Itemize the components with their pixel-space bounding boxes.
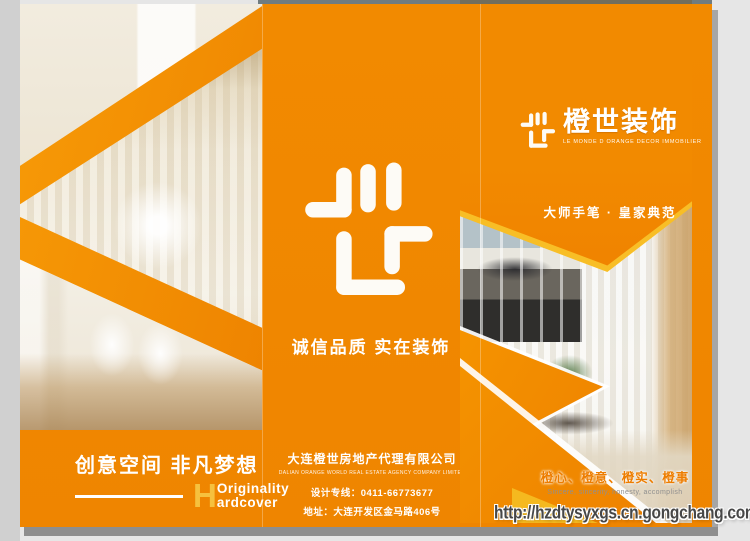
- center-slogan: 诚信品质 实在装饰: [266, 333, 476, 358]
- left-photo-collage: [20, 4, 262, 430]
- company-design-hotline: 设计专线：0411-66773677: [272, 485, 472, 499]
- top-edge-strip: [258, 0, 712, 4]
- right-shadow: [712, 10, 718, 527]
- bottom-shadow: [24, 527, 718, 536]
- brand-logo: 橙世装饰 LE MONDE D ORANGE DECOR IMMOBILIER: [516, 108, 702, 154]
- company-name-english: DALIAN ORANGE WORLD REAL ESTATE AGENCY C…: [272, 470, 472, 476]
- brand-title: 橙世装饰: [563, 108, 702, 136]
- bottom-left-slogan: 创意空间 非凡梦想: [75, 449, 259, 478]
- company-name-chinese: 大连橙世房地产代理有限公司: [272, 450, 472, 467]
- watermark-url: http://hzdtysyxgs.cn.gongchang.com: [494, 503, 750, 524]
- hardcover-initial: H: [193, 482, 216, 510]
- shi-logomark-icon: [288, 148, 436, 318]
- company-address: 地址：大连开发区金马路406号: [272, 504, 472, 518]
- fold-line-right: [480, 4, 481, 527]
- brand-values-block: 橙心、橙意、橙实、橙事 Sincere, sincerity, honesty,…: [520, 467, 710, 496]
- brand-subtitle: LE MONDE D ORANGE DECOR IMMOBILIER: [563, 139, 702, 145]
- left-margin: [0, 0, 20, 541]
- brand-values-english: Sincere, sincerity, honesty, accomplish: [520, 489, 710, 496]
- brand-text-block: 橙世装饰 LE MONDE D ORANGE DECOR IMMOBILIER: [563, 108, 702, 145]
- fold-line-left: [262, 4, 263, 527]
- brochure-page: 诚信品质 实在装饰 橙世装饰 LE MONDE D ORANGE DECOR I…: [0, 0, 750, 541]
- ribbon-tagline: 大师手笔 · 皇家典范: [515, 202, 705, 221]
- company-info-block: 大连橙世房地产代理有限公司 DALIAN ORANGE WORLD REAL E…: [272, 450, 472, 518]
- hardcover-logo: H Originality ardcover: [75, 482, 289, 511]
- divider-line: [75, 495, 183, 498]
- brand-values-chinese: 橙心、橙意、橙实、橙事: [520, 467, 710, 486]
- brand-shi-icon: [516, 108, 556, 154]
